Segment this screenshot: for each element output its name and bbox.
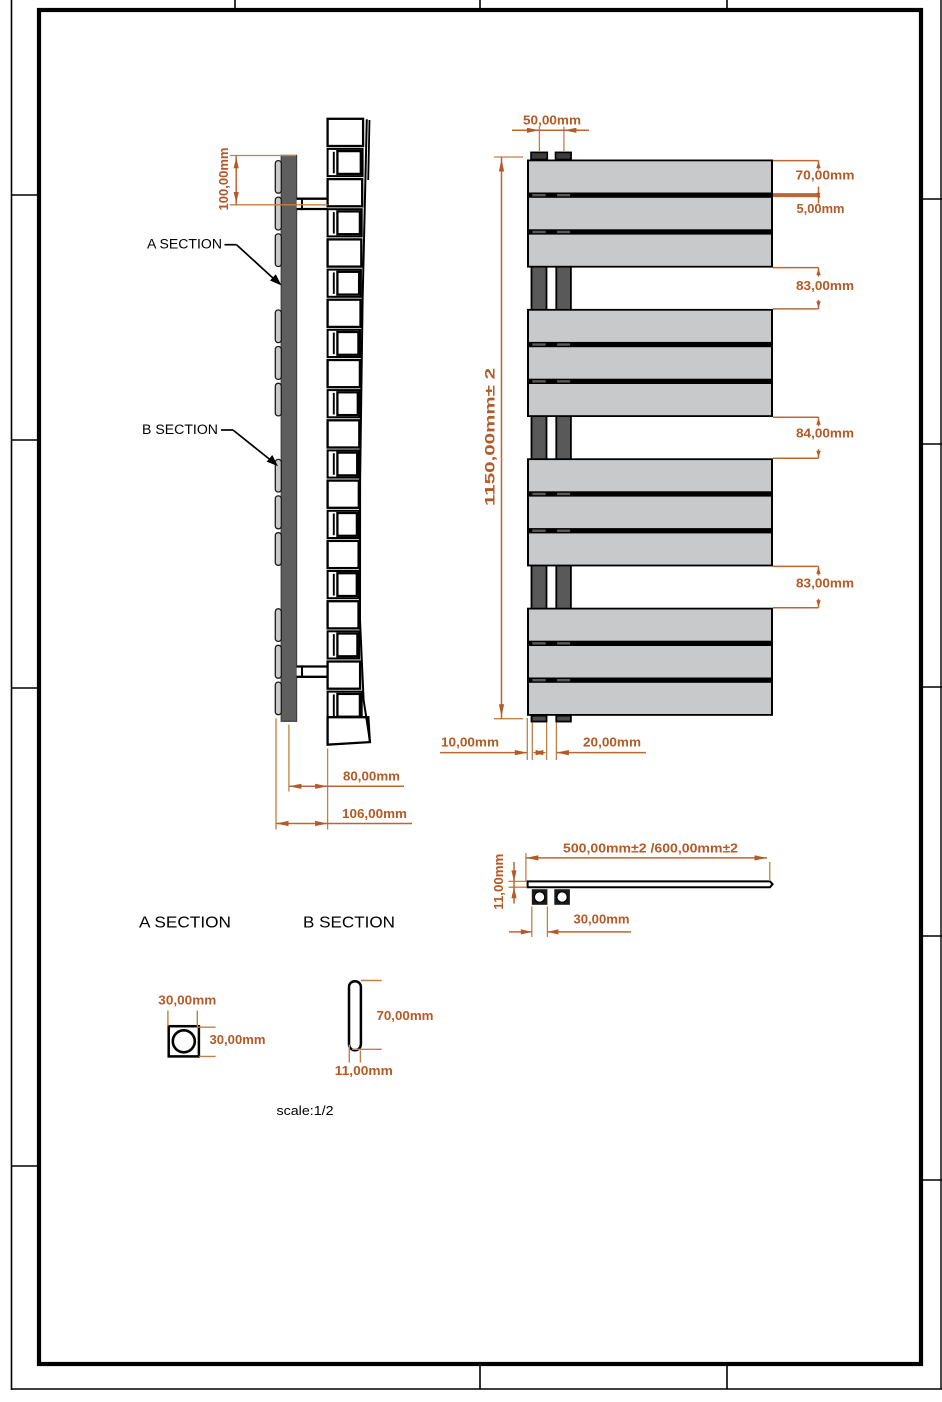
svg-text:1150,00mm± 2: 1150,00mm± 2 bbox=[483, 368, 498, 506]
svg-text:A SECTION: A SECTION bbox=[139, 915, 231, 932]
svg-text:11,00mm: 11,00mm bbox=[335, 1063, 393, 1078]
svg-text:70,00mm: 70,00mm bbox=[796, 168, 855, 183]
svg-text:50,00mm: 50,00mm bbox=[523, 113, 581, 128]
svg-text:80,00mm: 80,00mm bbox=[343, 768, 400, 783]
svg-text:100,00mm: 100,00mm bbox=[217, 148, 231, 211]
svg-text:B SECTION: B SECTION bbox=[303, 915, 395, 932]
svg-text:84,00mm: 84,00mm bbox=[796, 426, 854, 441]
svg-text:scale:1/2: scale:1/2 bbox=[277, 1103, 334, 1118]
svg-text:11,00mm: 11,00mm bbox=[492, 854, 506, 910]
svg-text:B SECTION: B SECTION bbox=[142, 422, 218, 437]
svg-text:30,00mm: 30,00mm bbox=[210, 1032, 266, 1047]
svg-text:500,00mm±2 /600,00mm±2: 500,00mm±2 /600,00mm±2 bbox=[563, 840, 738, 855]
svg-text:30,00mm: 30,00mm bbox=[574, 911, 630, 926]
svg-text:106,00mm: 106,00mm bbox=[342, 806, 407, 821]
svg-text:83,00mm: 83,00mm bbox=[796, 576, 854, 591]
svg-text:A SECTION: A SECTION bbox=[147, 237, 222, 252]
svg-text:20,00mm: 20,00mm bbox=[583, 735, 641, 750]
svg-text:70,00mm: 70,00mm bbox=[377, 1008, 434, 1023]
svg-text:30,00mm: 30,00mm bbox=[158, 993, 216, 1008]
svg-text:10,00mm: 10,00mm bbox=[441, 735, 499, 750]
svg-text:83,00mm: 83,00mm bbox=[796, 278, 854, 293]
svg-text:5,00mm: 5,00mm bbox=[797, 201, 845, 216]
